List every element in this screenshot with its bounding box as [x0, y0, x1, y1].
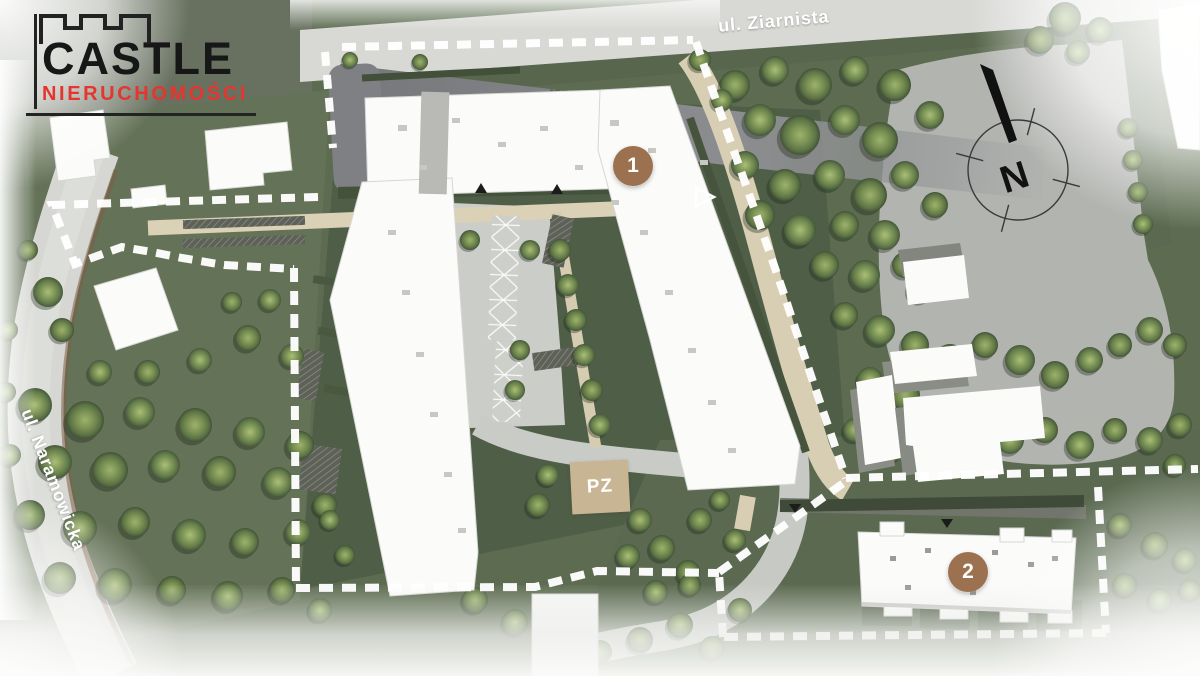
logo-title: CASTLE — [42, 38, 256, 79]
pz-zone-label: PZ — [570, 460, 631, 515]
marker-building-1[interactable]: 1 — [613, 146, 653, 186]
castle-logo: CASTLE NIERUCHOMOŚCI — [26, 6, 256, 116]
castle-battlement-icon — [37, 10, 157, 44]
logo-subtitle: NIERUCHOMOŚCI — [42, 83, 256, 106]
site-plan: N CASTLE NIERUCHOMOŚCI ul. Ziarnista ul.… — [0, 0, 1200, 676]
marker-building-2[interactable]: 2 — [948, 552, 988, 592]
